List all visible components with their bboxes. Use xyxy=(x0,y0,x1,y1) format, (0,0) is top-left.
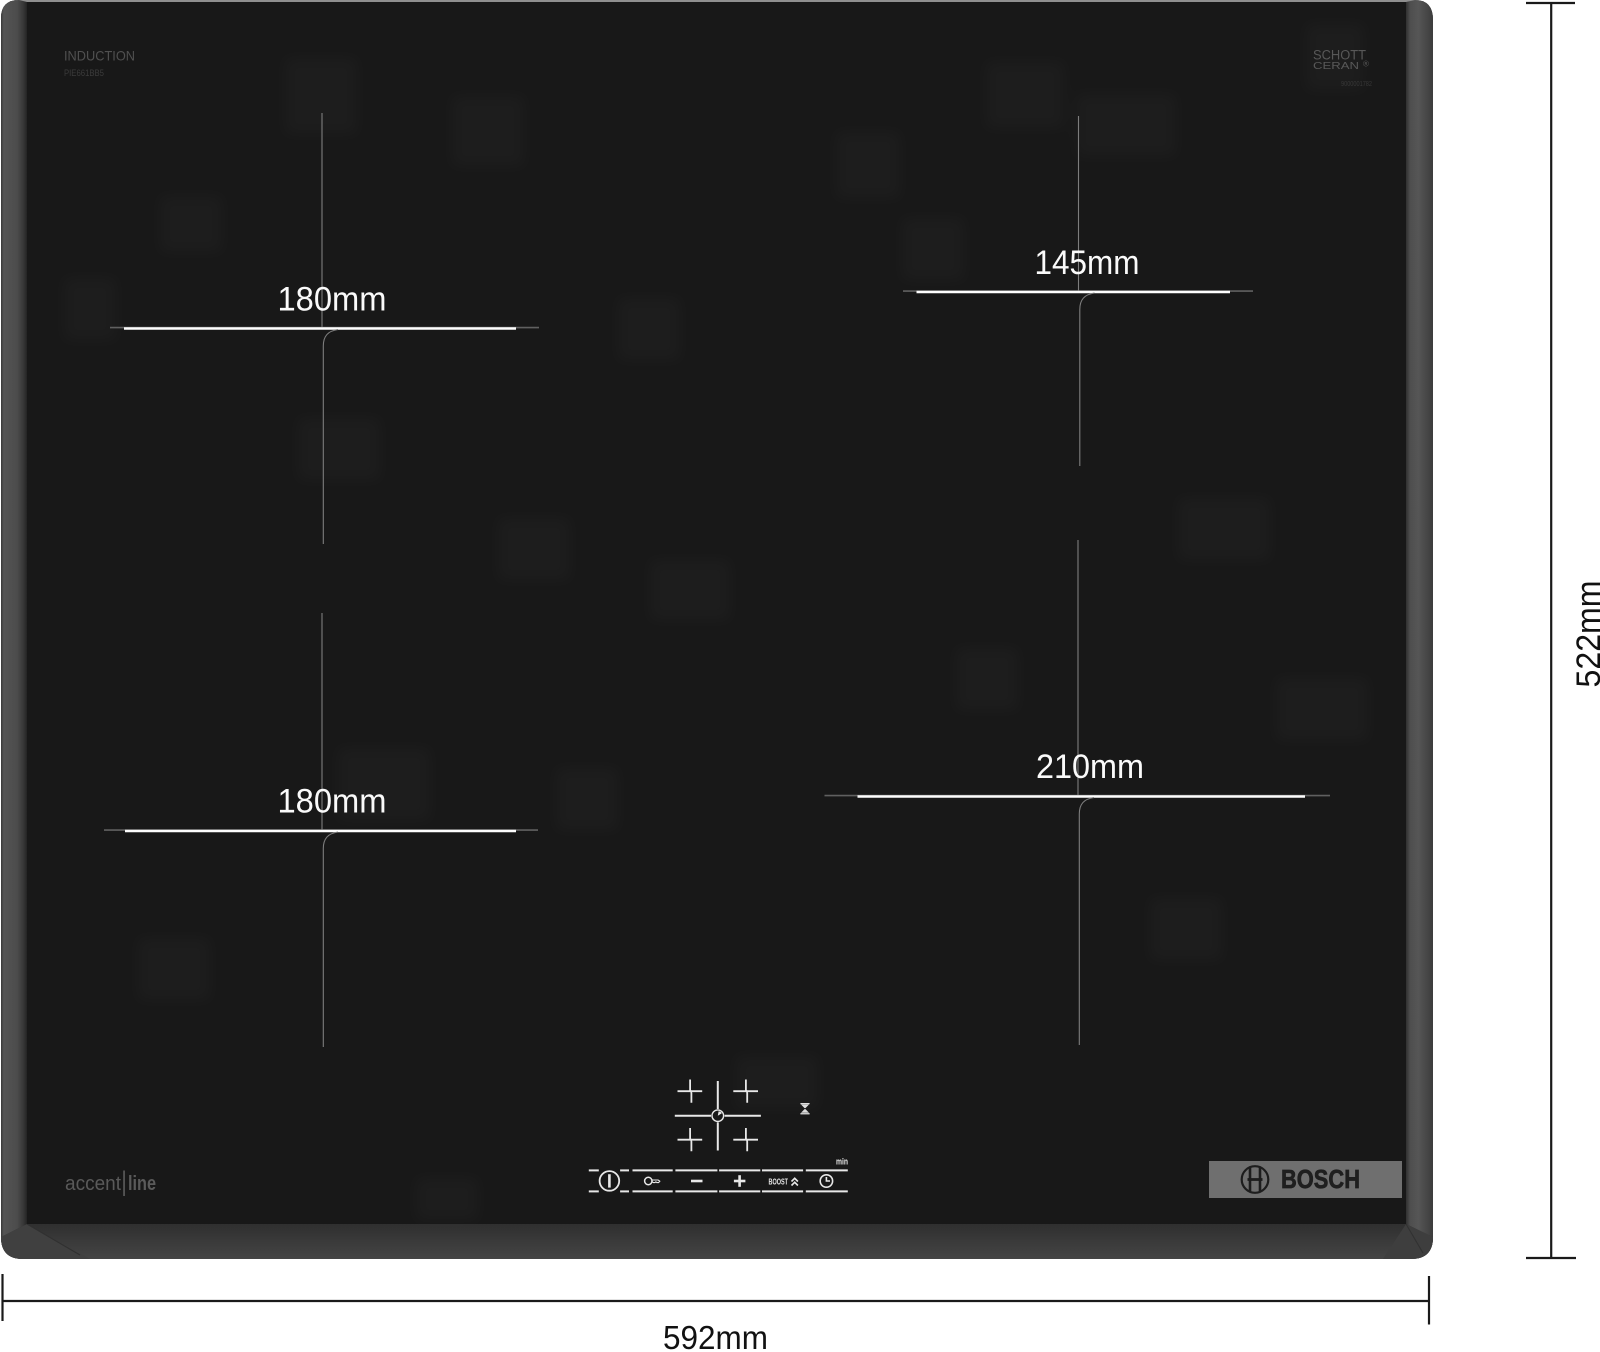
svg-text:145mm: 145mm xyxy=(1035,244,1140,282)
svg-text:BOOST: BOOST xyxy=(769,1177,789,1186)
svg-text:180mm: 180mm xyxy=(278,783,387,821)
svg-text:CERAN: CERAN xyxy=(1313,60,1359,72)
svg-text:PIE661BB5: PIE661BB5 xyxy=(64,68,104,78)
svg-text:line: line xyxy=(128,1173,156,1195)
svg-text:®: ® xyxy=(1363,60,1369,69)
svg-text:accent: accent xyxy=(65,1173,121,1195)
svg-text:INDUCTION: INDUCTION xyxy=(64,48,135,64)
svg-text:BOSCH: BOSCH xyxy=(1281,1164,1360,1194)
svg-text:592mm: 592mm xyxy=(663,1320,768,1352)
svg-text:9000001782: 9000001782 xyxy=(1341,81,1372,88)
svg-text:210mm: 210mm xyxy=(1036,748,1144,786)
svg-text:180mm: 180mm xyxy=(278,281,387,319)
svg-text:min: min xyxy=(836,1157,848,1167)
svg-text:522mm: 522mm xyxy=(1570,581,1600,688)
